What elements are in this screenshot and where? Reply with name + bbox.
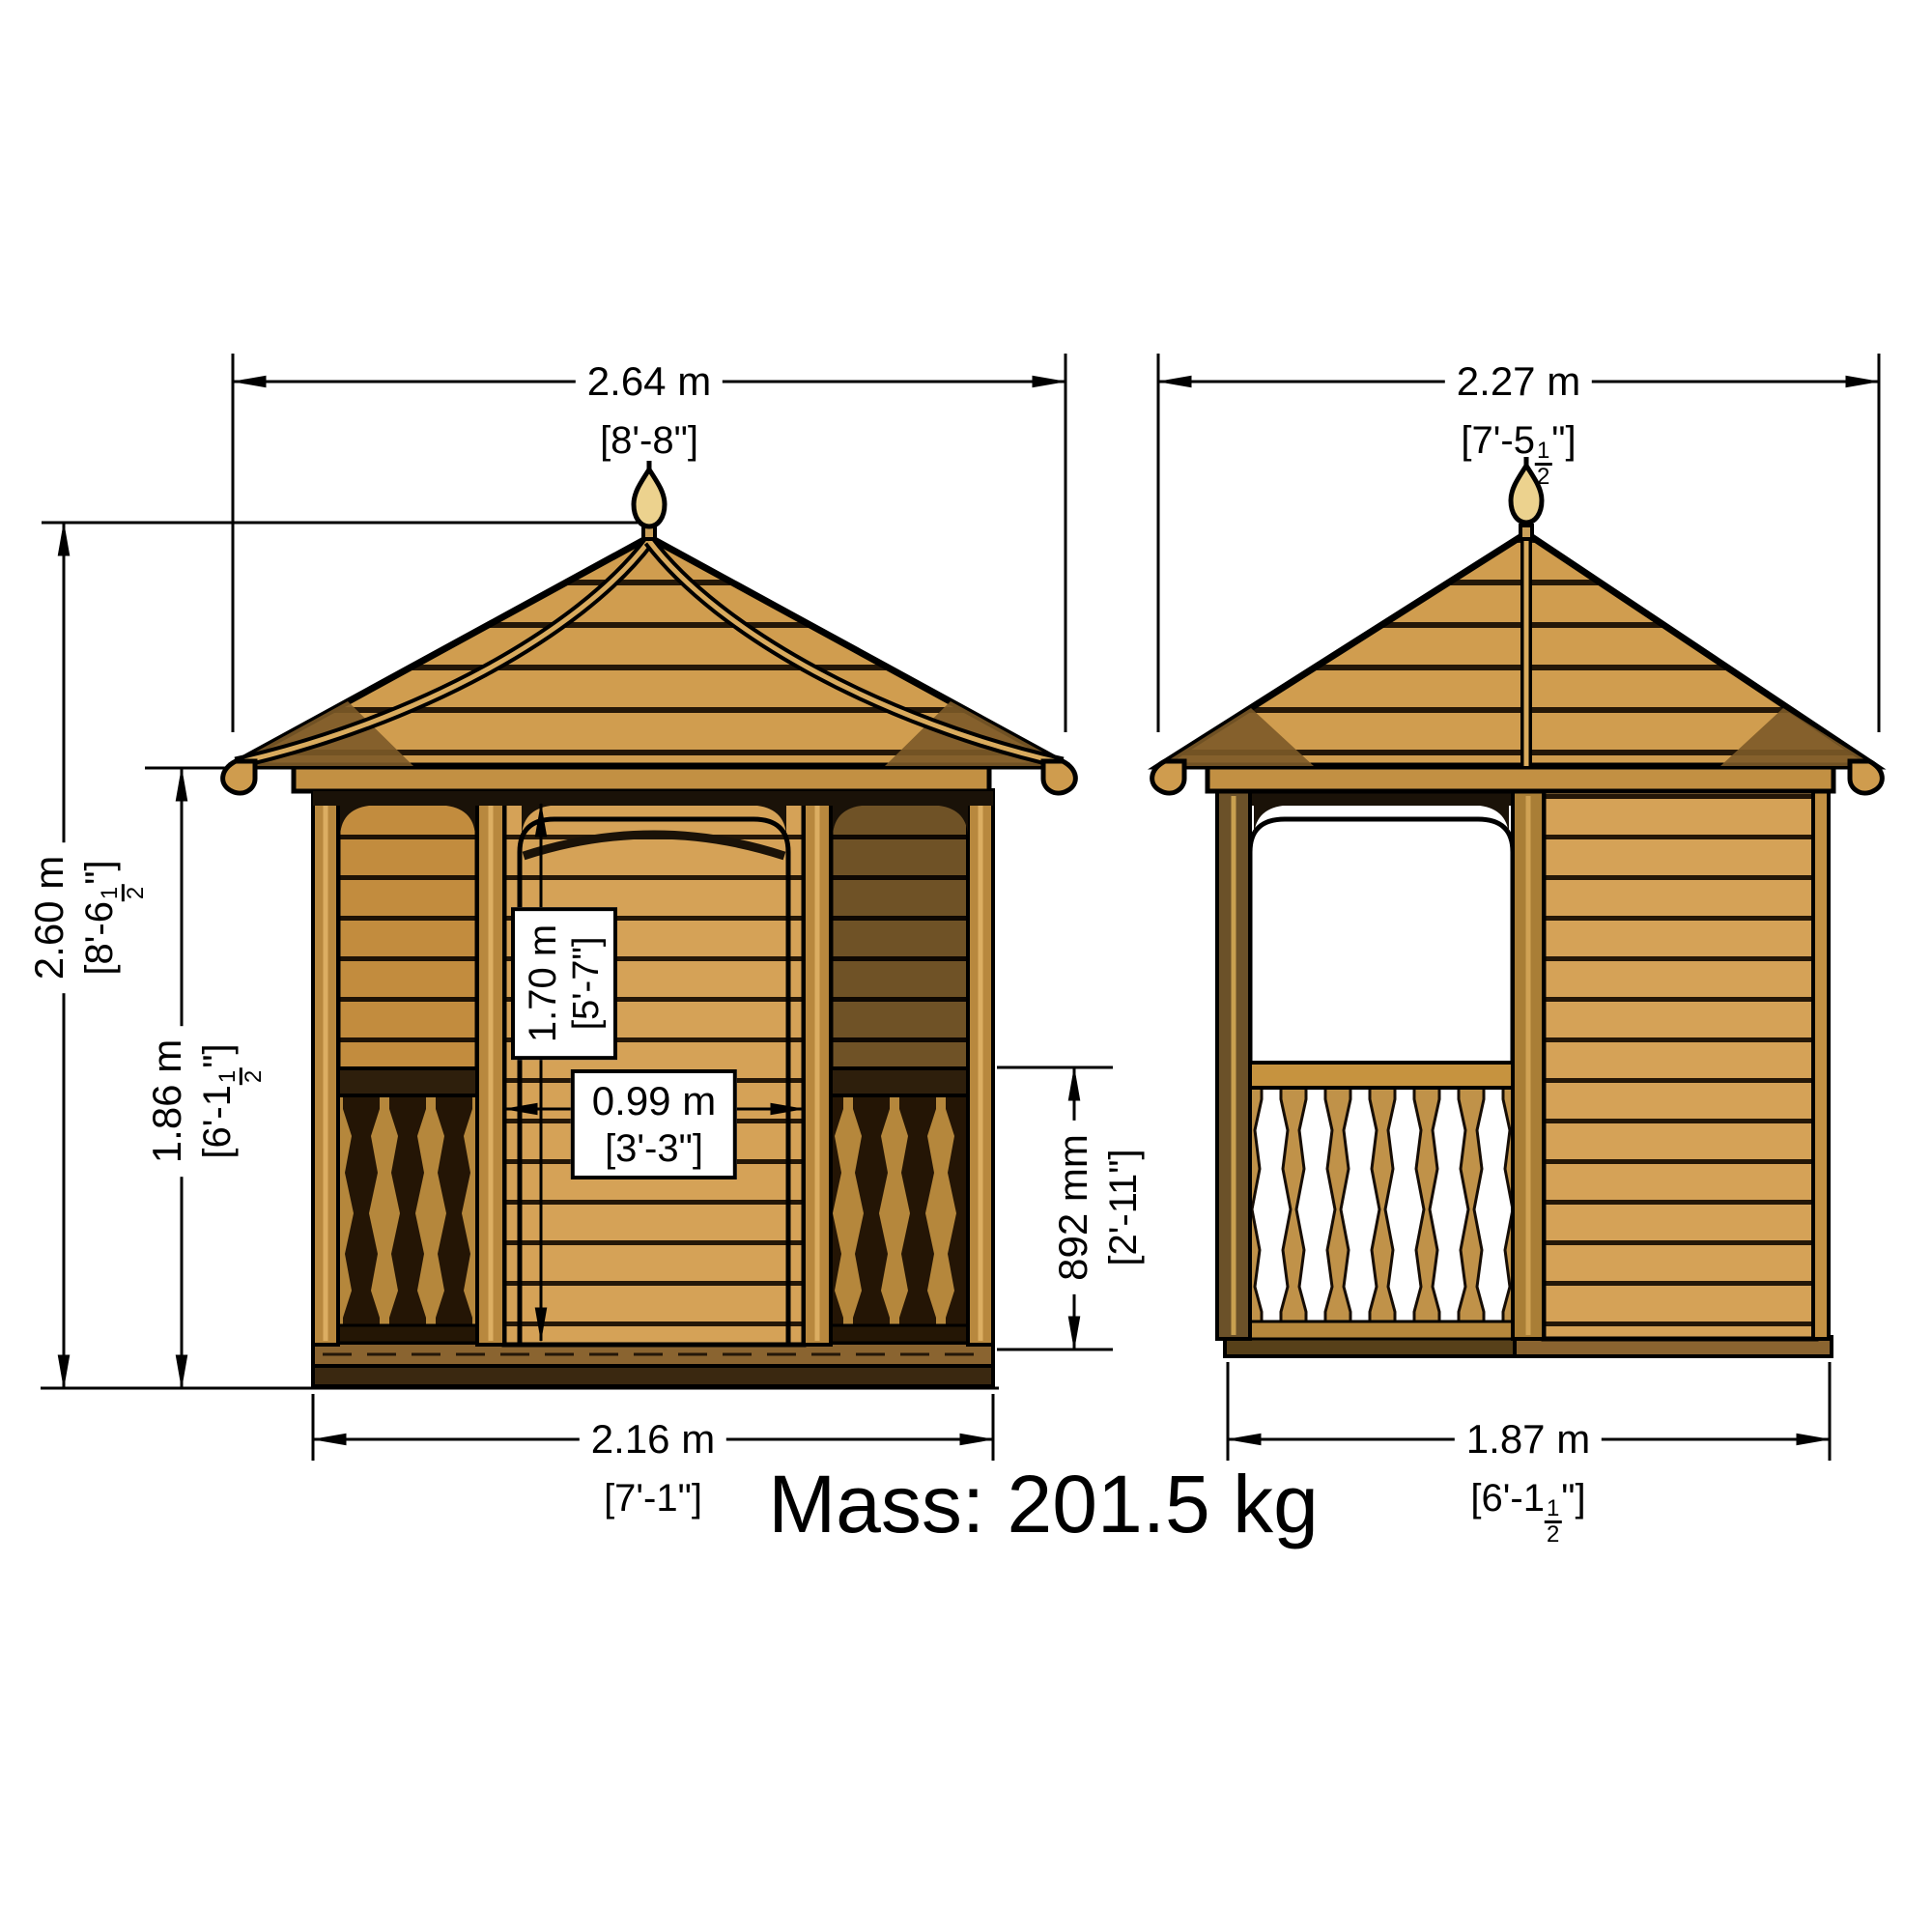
- side-wall-corner-trim: [1813, 790, 1829, 1339]
- mass-label: Mass: 201.5 kg: [768, 1460, 1319, 1548]
- dim-imperial-value: [8'-612"]: [78, 842, 148, 993]
- dim-metric-value: 2.64 m: [576, 358, 723, 405]
- side-wall-cladding: [1544, 790, 1816, 1339]
- side-roof: [1152, 533, 1883, 793]
- dim-front-roof-width-label: 2.64 m [8'-8"]: [576, 358, 723, 463]
- dim-imperial-value: [7'-1"]: [580, 1476, 726, 1520]
- dim-imperial-value: [6'-112"]: [1455, 1476, 1602, 1547]
- dim-railing-height-label: 892 mm [2'-11"]: [1050, 1121, 1145, 1294]
- dim-side-roof-width-label: 2.27 m [7'-512"]: [1445, 358, 1592, 489]
- side-left-eave-scroll: [1152, 761, 1184, 793]
- front-left-eave-scroll: [223, 761, 255, 793]
- dim-metric-value: 2.27 m: [1445, 358, 1592, 405]
- front-door-panel: [504, 792, 804, 1345]
- fraction: 12: [99, 885, 148, 901]
- side-window-opening: [1250, 791, 1513, 1065]
- dim-side-base-width-label: 1.87 m [6'-112"]: [1455, 1416, 1602, 1547]
- dim-metric-value: 892 mm: [1050, 1121, 1096, 1294]
- front-base: [313, 1343, 993, 1386]
- dim-metric-value: 2.16 m: [580, 1416, 726, 1463]
- front-right-bay-cladding: [831, 792, 970, 1074]
- dim-metric-value: 2.60 m: [26, 842, 72, 993]
- dim-door-width-label: 0.99 m [3'-3"]: [571, 1069, 737, 1179]
- fraction: 12: [1545, 1497, 1561, 1547]
- front-left-railing: [330, 1068, 485, 1343]
- front-right-railing: [823, 1068, 978, 1343]
- dim-eaves-height-label: 1.86 m [6'-112"]: [144, 1026, 266, 1177]
- dim-imperial-value: [5'-7"]: [565, 924, 608, 1042]
- front-head-band: [313, 791, 993, 806]
- side-right-eave-scroll: [1850, 761, 1882, 793]
- dim-imperial-value: [6'-112"]: [196, 1026, 266, 1177]
- fraction: 12: [216, 1068, 266, 1085]
- dim-metric-value: 1.86 m: [144, 1026, 190, 1177]
- dim-imperial-value: [3'-3"]: [592, 1125, 716, 1172]
- side-railing: [1219, 1063, 1519, 1339]
- dim-door-height-label: 1.70 m [5'-7"]: [511, 907, 617, 1060]
- front-roof: [223, 537, 1076, 793]
- front-finial-icon: [634, 461, 665, 539]
- front-right-eave-scroll: [1043, 761, 1075, 793]
- dim-front-base-width-label: 2.16 m [7'-1"]: [580, 1416, 726, 1520]
- dim-imperial-value: [8'-8"]: [576, 418, 723, 463]
- dim-overall-height-label: 2.60 m [8'-612"]: [26, 842, 148, 993]
- dim-imperial-value: [7'-512"]: [1445, 418, 1592, 489]
- dim-metric-value: 1.70 m: [521, 924, 565, 1042]
- fraction: 12: [1535, 440, 1551, 489]
- dim-metric-value: 1.87 m: [1455, 1416, 1602, 1463]
- page: { "mass_label": "Mass: 201.5 kg", "dimen…: [0, 0, 1932, 1932]
- gazebo-technical-drawing: [0, 0, 1932, 1932]
- front-left-bay-cladding: [338, 792, 477, 1074]
- side-elevation: [1152, 457, 1883, 1356]
- dim-imperial-value: [2'-11"]: [1102, 1121, 1145, 1294]
- dim-metric-value: 0.99 m: [592, 1077, 716, 1125]
